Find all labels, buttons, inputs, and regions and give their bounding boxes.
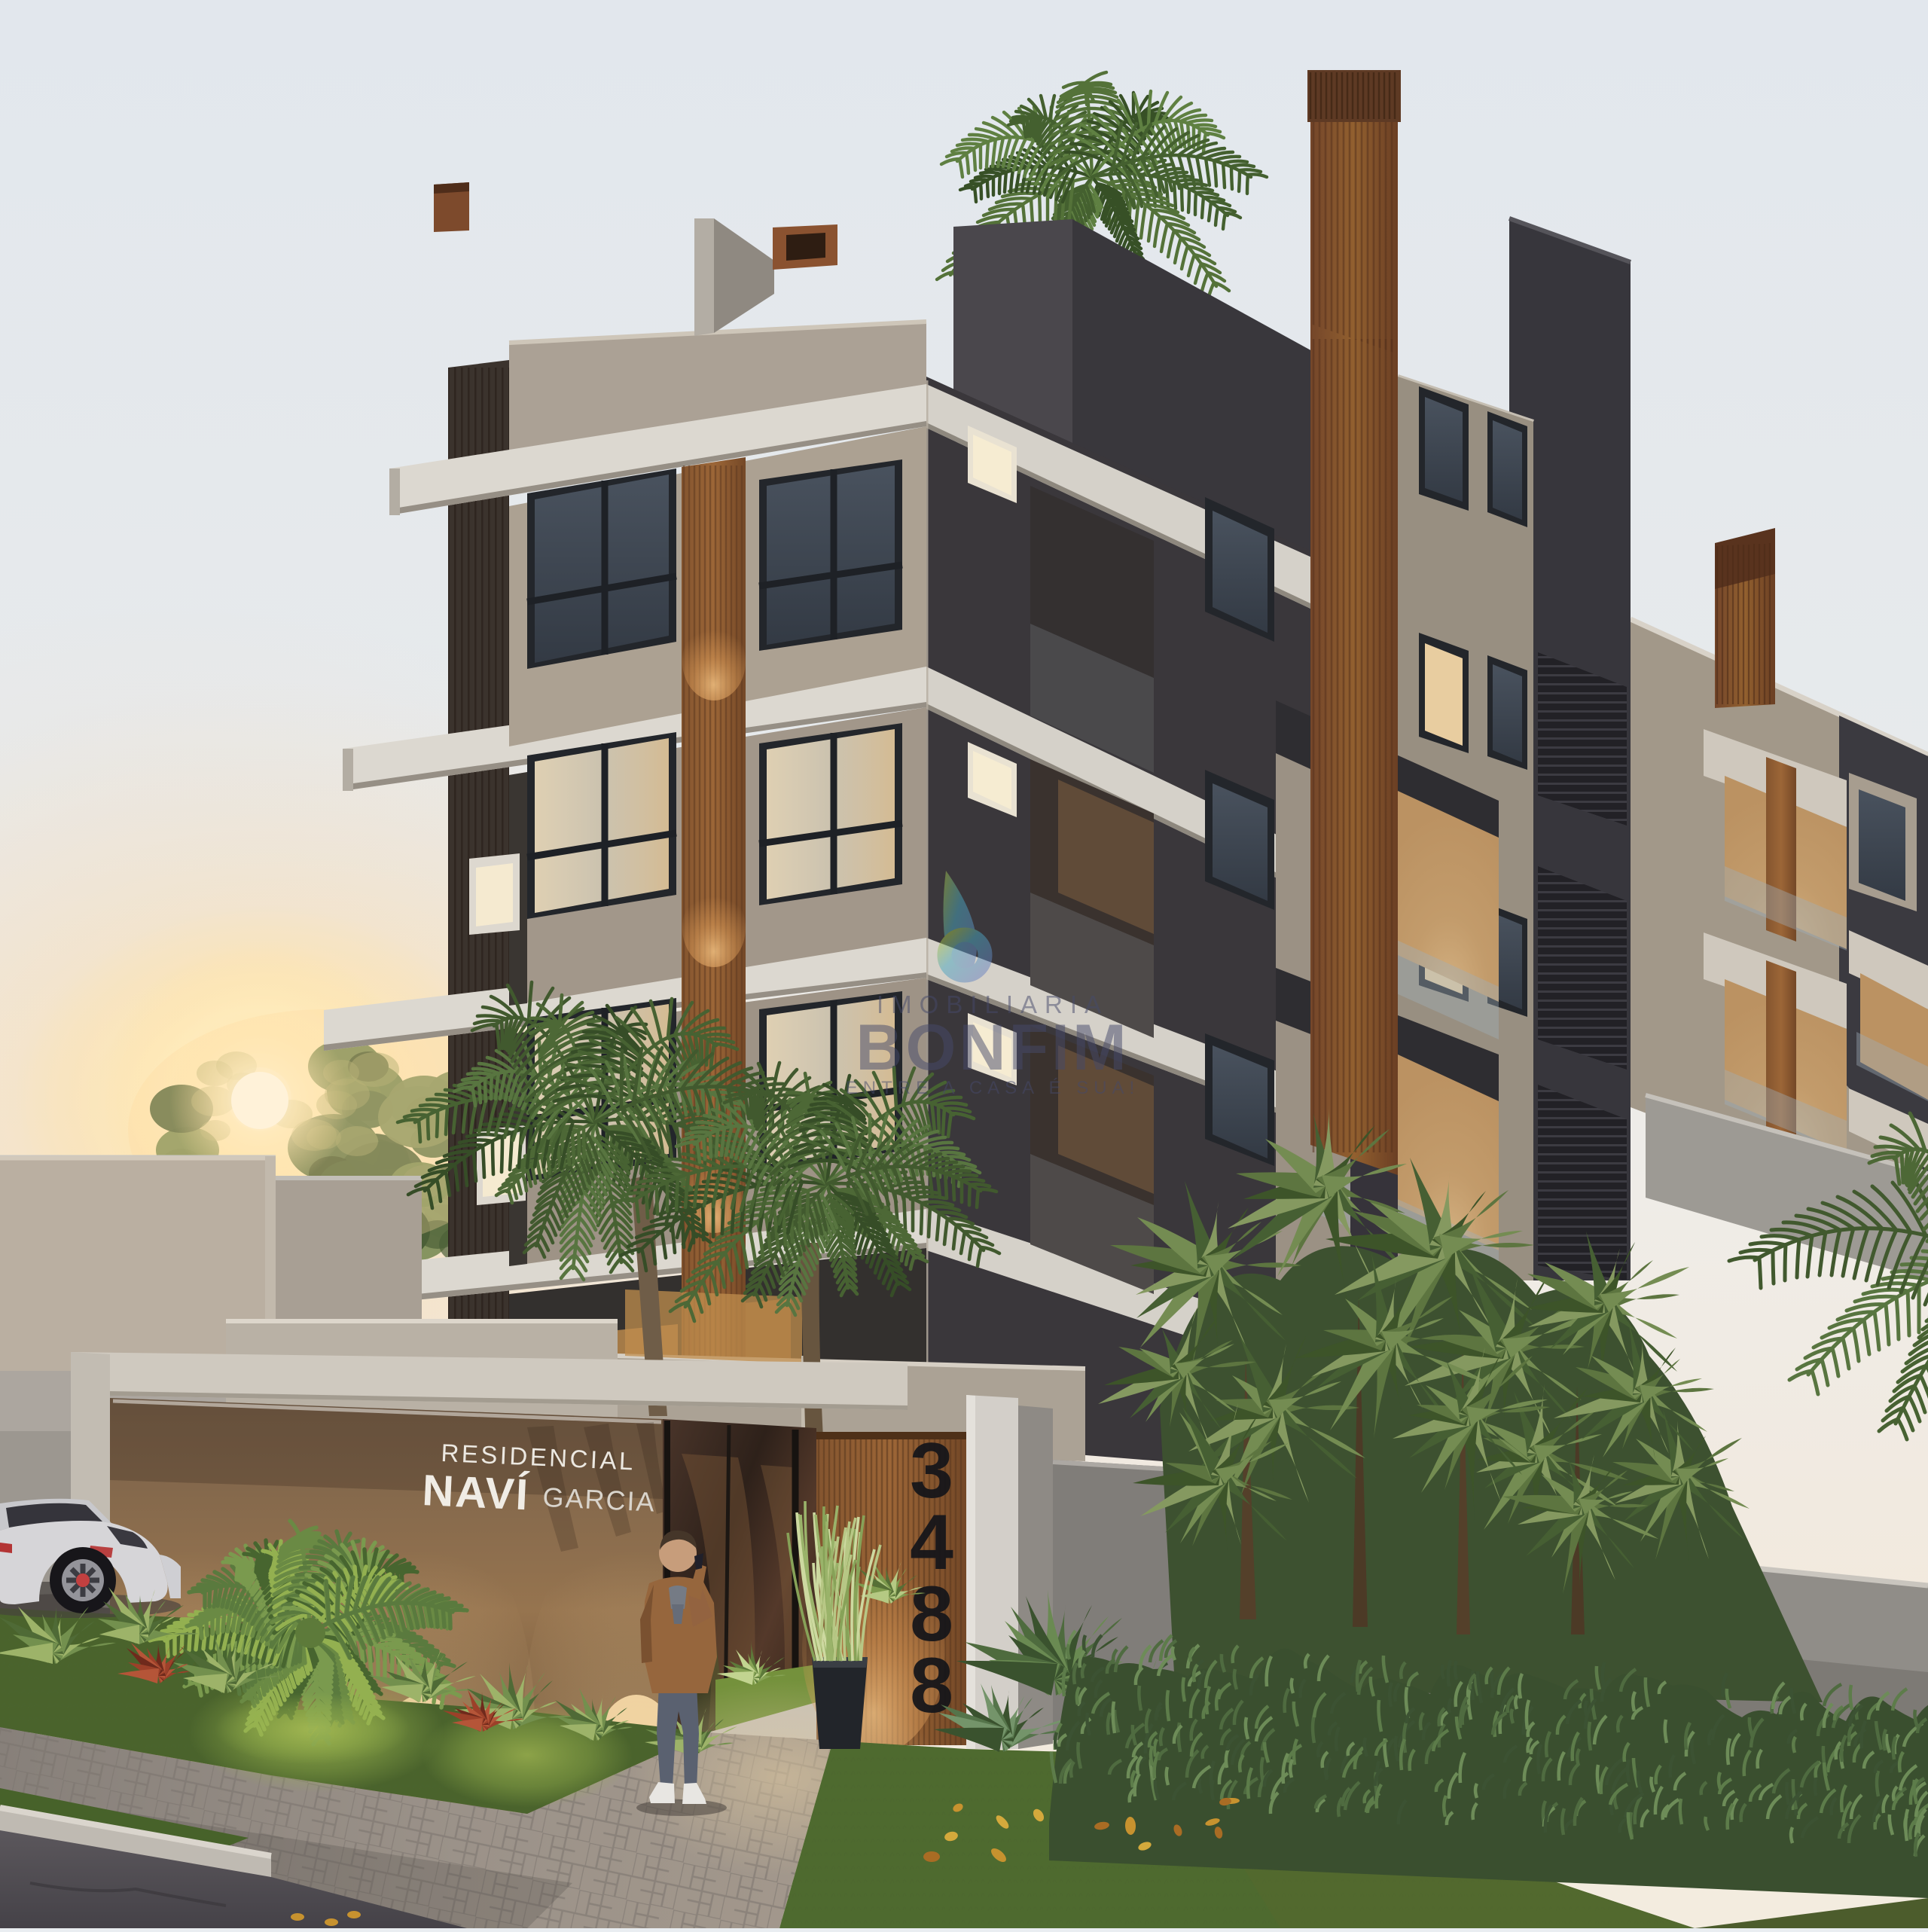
- svg-text:ENTRE A CASA É SUA!: ENTRE A CASA É SUA!: [846, 1078, 1139, 1098]
- svg-text:GARCIA: GARCIA: [542, 1482, 657, 1518]
- svg-text:NAVÍ: NAVÍ: [421, 1466, 530, 1519]
- svg-text:BONFIM: BONFIM: [856, 1012, 1129, 1084]
